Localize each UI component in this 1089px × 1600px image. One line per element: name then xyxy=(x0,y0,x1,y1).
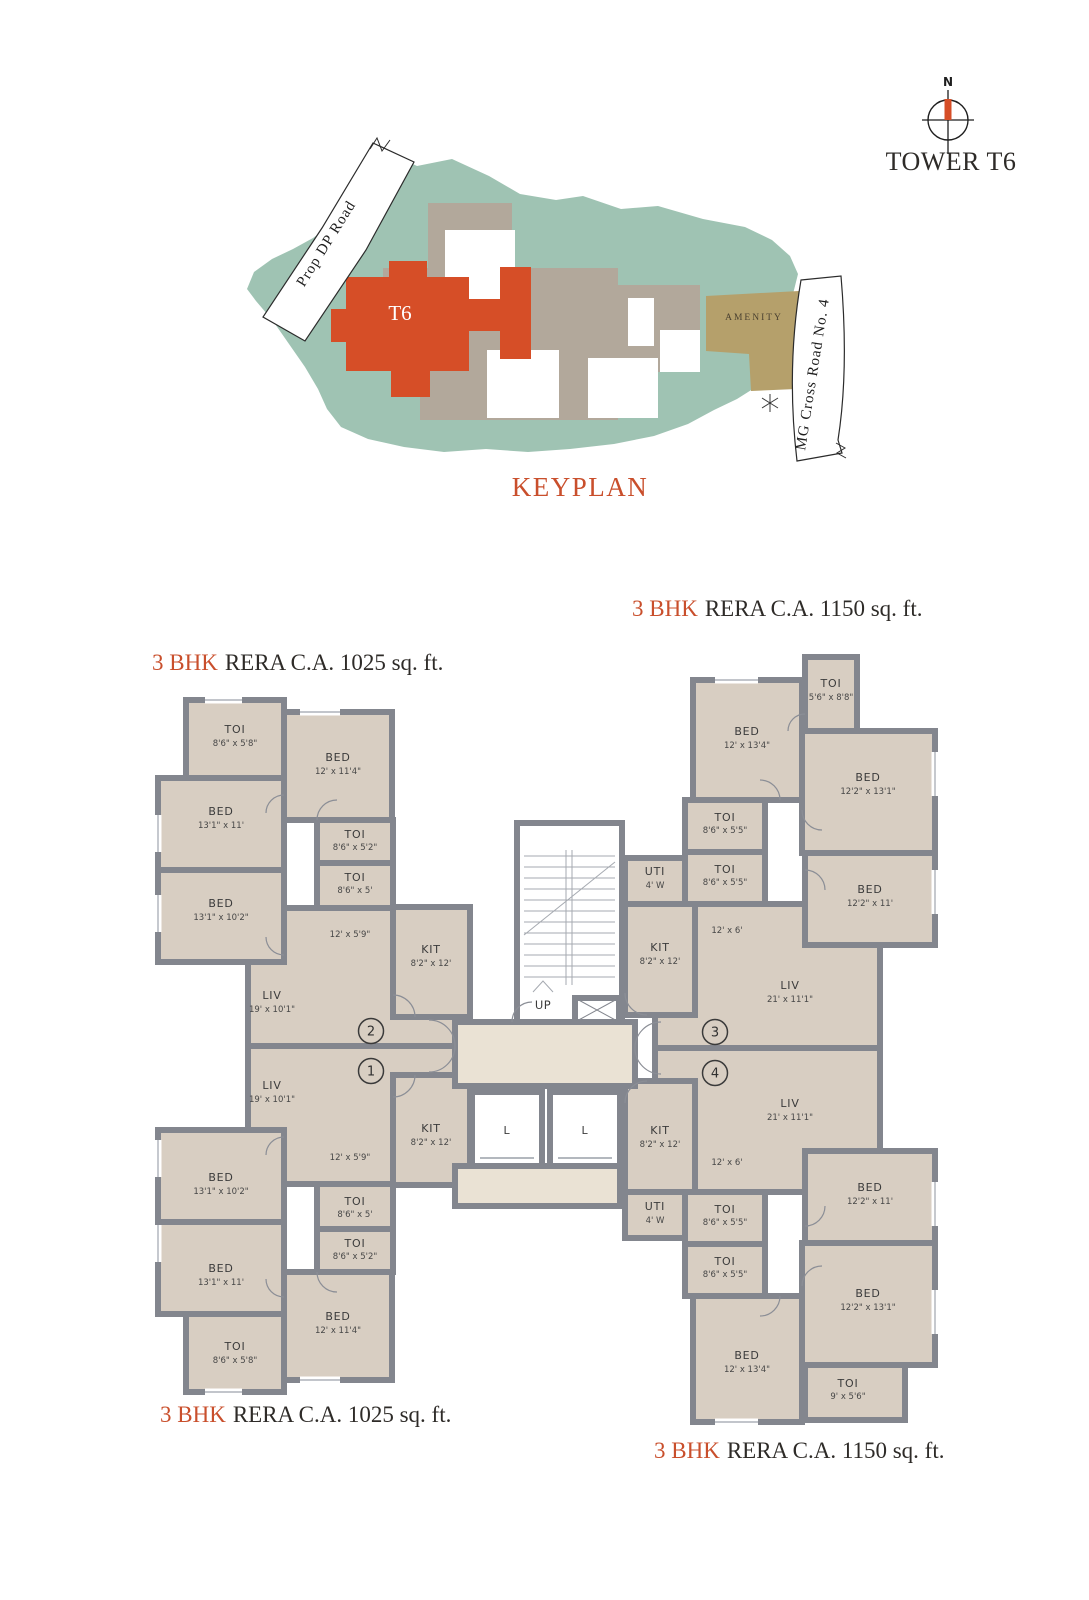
keyplan-tower-cutout xyxy=(660,330,700,372)
unit-4-badge: 4 xyxy=(703,1061,728,1086)
svg-text:12' x 13'4": 12' x 13'4" xyxy=(724,741,770,751)
svg-text:8'6" x 5'5": 8'6" x 5'5" xyxy=(703,1218,748,1228)
svg-text:BED: BED xyxy=(325,751,350,764)
svg-text:TOI: TOI xyxy=(713,863,735,876)
svg-text:12' x 11'4": 12' x 11'4" xyxy=(315,767,361,777)
room-u1-toi-d xyxy=(317,1229,393,1272)
svg-text:12' x 5'9": 12' x 5'9" xyxy=(330,1153,371,1163)
lift-1-label: L xyxy=(504,1124,511,1137)
svg-text:19' x 10'1": 19' x 10'1" xyxy=(249,1095,295,1105)
svg-text:8'6" x 5'5": 8'6" x 5'5" xyxy=(703,1270,748,1280)
stair-up-label: UP xyxy=(535,998,551,1012)
svg-text:8'6" x 5'5": 8'6" x 5'5" xyxy=(703,878,748,888)
svg-text:BED: BED xyxy=(855,771,880,784)
keyplan-tower-cutout xyxy=(588,358,658,418)
svg-text:LIV: LIV xyxy=(262,1079,281,1092)
svg-text:8'2" x 12': 8'2" x 12' xyxy=(411,959,452,969)
svg-text:TOI: TOI xyxy=(819,677,841,690)
keyplan-map: T6 AMENITY Prop DP Road MG Cross Road No… xyxy=(247,138,846,461)
svg-text:UTI: UTI xyxy=(645,865,665,878)
svg-text:3: 3 xyxy=(711,1026,719,1041)
svg-text:8'6" x 5'8": 8'6" x 5'8" xyxy=(213,739,258,749)
svg-text:12'2" x 11': 12'2" x 11' xyxy=(847,899,893,909)
svg-text:21' x 11'1": 21' x 11'1" xyxy=(767,995,813,1005)
keyplan-tower-cutout xyxy=(487,350,559,418)
svg-text:8'2" x 12': 8'2" x 12' xyxy=(640,957,681,967)
svg-text:12' x 5'9": 12' x 5'9" xyxy=(330,930,371,940)
svg-text:1: 1 xyxy=(367,1065,375,1080)
svg-text:TOI: TOI xyxy=(343,828,365,841)
svg-text:8'6" x 5'2": 8'6" x 5'2" xyxy=(333,843,378,853)
lift-2-label: L xyxy=(582,1124,589,1137)
svg-text:4: 4 xyxy=(711,1067,719,1082)
svg-text:8'6" x 5'5": 8'6" x 5'5" xyxy=(703,826,748,836)
svg-text:8'6" x 5': 8'6" x 5' xyxy=(337,1210,372,1220)
room-u1-toi-a xyxy=(186,1314,284,1392)
svg-text:8'2" x 12': 8'2" x 12' xyxy=(640,1140,681,1150)
svg-text:LIV: LIV xyxy=(780,1097,799,1110)
svg-text:2: 2 xyxy=(367,1025,375,1040)
lift-lobby xyxy=(455,1022,635,1086)
svg-text:UTI: UTI xyxy=(645,1200,665,1213)
room-u2-bed-b xyxy=(284,712,392,820)
svg-text:BED: BED xyxy=(208,897,233,910)
svg-text:KIT: KIT xyxy=(421,1122,441,1135)
room-u3-bed-h xyxy=(693,680,802,800)
svg-text:TOI: TOI xyxy=(223,1340,245,1353)
rear-lobby xyxy=(455,1166,620,1206)
svg-text:12' x 13'4": 12' x 13'4" xyxy=(724,1365,770,1375)
svg-text:TOI: TOI xyxy=(343,1237,365,1250)
svg-text:TOI: TOI xyxy=(713,1203,735,1216)
svg-text:12'2" x 13'1": 12'2" x 13'1" xyxy=(840,787,895,797)
compass-needle xyxy=(945,99,952,120)
keyplan-tower-cutout xyxy=(628,298,654,346)
svg-text:BED: BED xyxy=(208,805,233,818)
duct-shaft xyxy=(575,998,619,1022)
svg-text:12'2" x 11': 12'2" x 11' xyxy=(847,1197,893,1207)
svg-text:BED: BED xyxy=(325,1310,350,1323)
floorplan-drawing: UP DN L L xyxy=(158,657,935,1422)
svg-text:19' x 10'1": 19' x 10'1" xyxy=(249,1005,295,1015)
svg-text:12'2" x 13'1": 12'2" x 13'1" xyxy=(840,1303,895,1313)
svg-text:BED: BED xyxy=(734,1349,759,1362)
svg-text:12' x 6': 12' x 6' xyxy=(711,926,742,936)
svg-text:13'1" x 10'2": 13'1" x 10'2" xyxy=(193,1187,248,1197)
svg-text:4' W: 4' W xyxy=(646,1216,665,1226)
svg-text:TOI: TOI xyxy=(343,871,365,884)
svg-text:13'1" x 11': 13'1" x 11' xyxy=(198,1278,244,1288)
svg-text:BED: BED xyxy=(855,1287,880,1300)
svg-text:KIT: KIT xyxy=(650,941,670,954)
svg-text:4' W: 4' W xyxy=(646,881,665,891)
svg-text:TOI: TOI xyxy=(713,811,735,824)
svg-text:21' x 11'1": 21' x 11'1" xyxy=(767,1113,813,1123)
unit-2-badge: 2 xyxy=(359,1019,384,1044)
compass-icon: N xyxy=(922,75,974,154)
keyplan-amenity-label: AMENITY xyxy=(725,313,783,323)
svg-text:8'6" x 5'2": 8'6" x 5'2" xyxy=(333,1252,378,1262)
svg-text:TOI: TOI xyxy=(713,1255,735,1268)
svg-text:9' x 5'6": 9' x 5'6" xyxy=(830,1392,865,1402)
svg-text:BED: BED xyxy=(734,725,759,738)
svg-text:BED: BED xyxy=(857,883,882,896)
compass-north-label: N xyxy=(943,75,953,89)
svg-text:KIT: KIT xyxy=(650,1124,670,1137)
svg-text:BED: BED xyxy=(208,1171,233,1184)
unit-1-badge: 1 xyxy=(359,1059,384,1084)
svg-text:5'6" x 8'8": 5'6" x 8'8" xyxy=(809,693,854,703)
floorplan-page: TOWER T6 KEYPLAN 3 BHKRERA C.A. 1025 sq.… xyxy=(0,0,1089,1600)
unit-3-badge: 3 xyxy=(703,1020,728,1045)
svg-text:TOI: TOI xyxy=(343,1195,365,1208)
svg-text:8'6" x 5': 8'6" x 5' xyxy=(337,886,372,896)
keyplan-t6-label: T6 xyxy=(388,301,411,325)
svg-text:12' x 6': 12' x 6' xyxy=(711,1158,742,1168)
svg-text:LIV: LIV xyxy=(262,989,281,1002)
svg-text:8'2" x 12': 8'2" x 12' xyxy=(411,1138,452,1148)
room-u2-toi-d xyxy=(317,820,393,863)
svg-text:KIT: KIT xyxy=(421,943,441,956)
svg-text:TOI: TOI xyxy=(836,1377,858,1390)
svg-text:TOI: TOI xyxy=(223,723,245,736)
room-u4-utility xyxy=(625,1192,685,1238)
svg-text:12' x 11'4": 12' x 11'4" xyxy=(315,1326,361,1336)
plan-canvas: N T6 AMENITY Prop DP Road MG Cross Road … xyxy=(0,0,1089,1600)
svg-text:BED: BED xyxy=(208,1262,233,1275)
svg-text:BED: BED xyxy=(857,1181,882,1194)
svg-text:13'1" x 11': 13'1" x 11' xyxy=(198,821,244,831)
svg-text:8'6" x 5'8": 8'6" x 5'8" xyxy=(213,1356,258,1366)
keyplan-tree-icon xyxy=(762,394,778,412)
svg-text:LIV: LIV xyxy=(780,979,799,992)
svg-text:13'1" x 10'2": 13'1" x 10'2" xyxy=(193,913,248,923)
